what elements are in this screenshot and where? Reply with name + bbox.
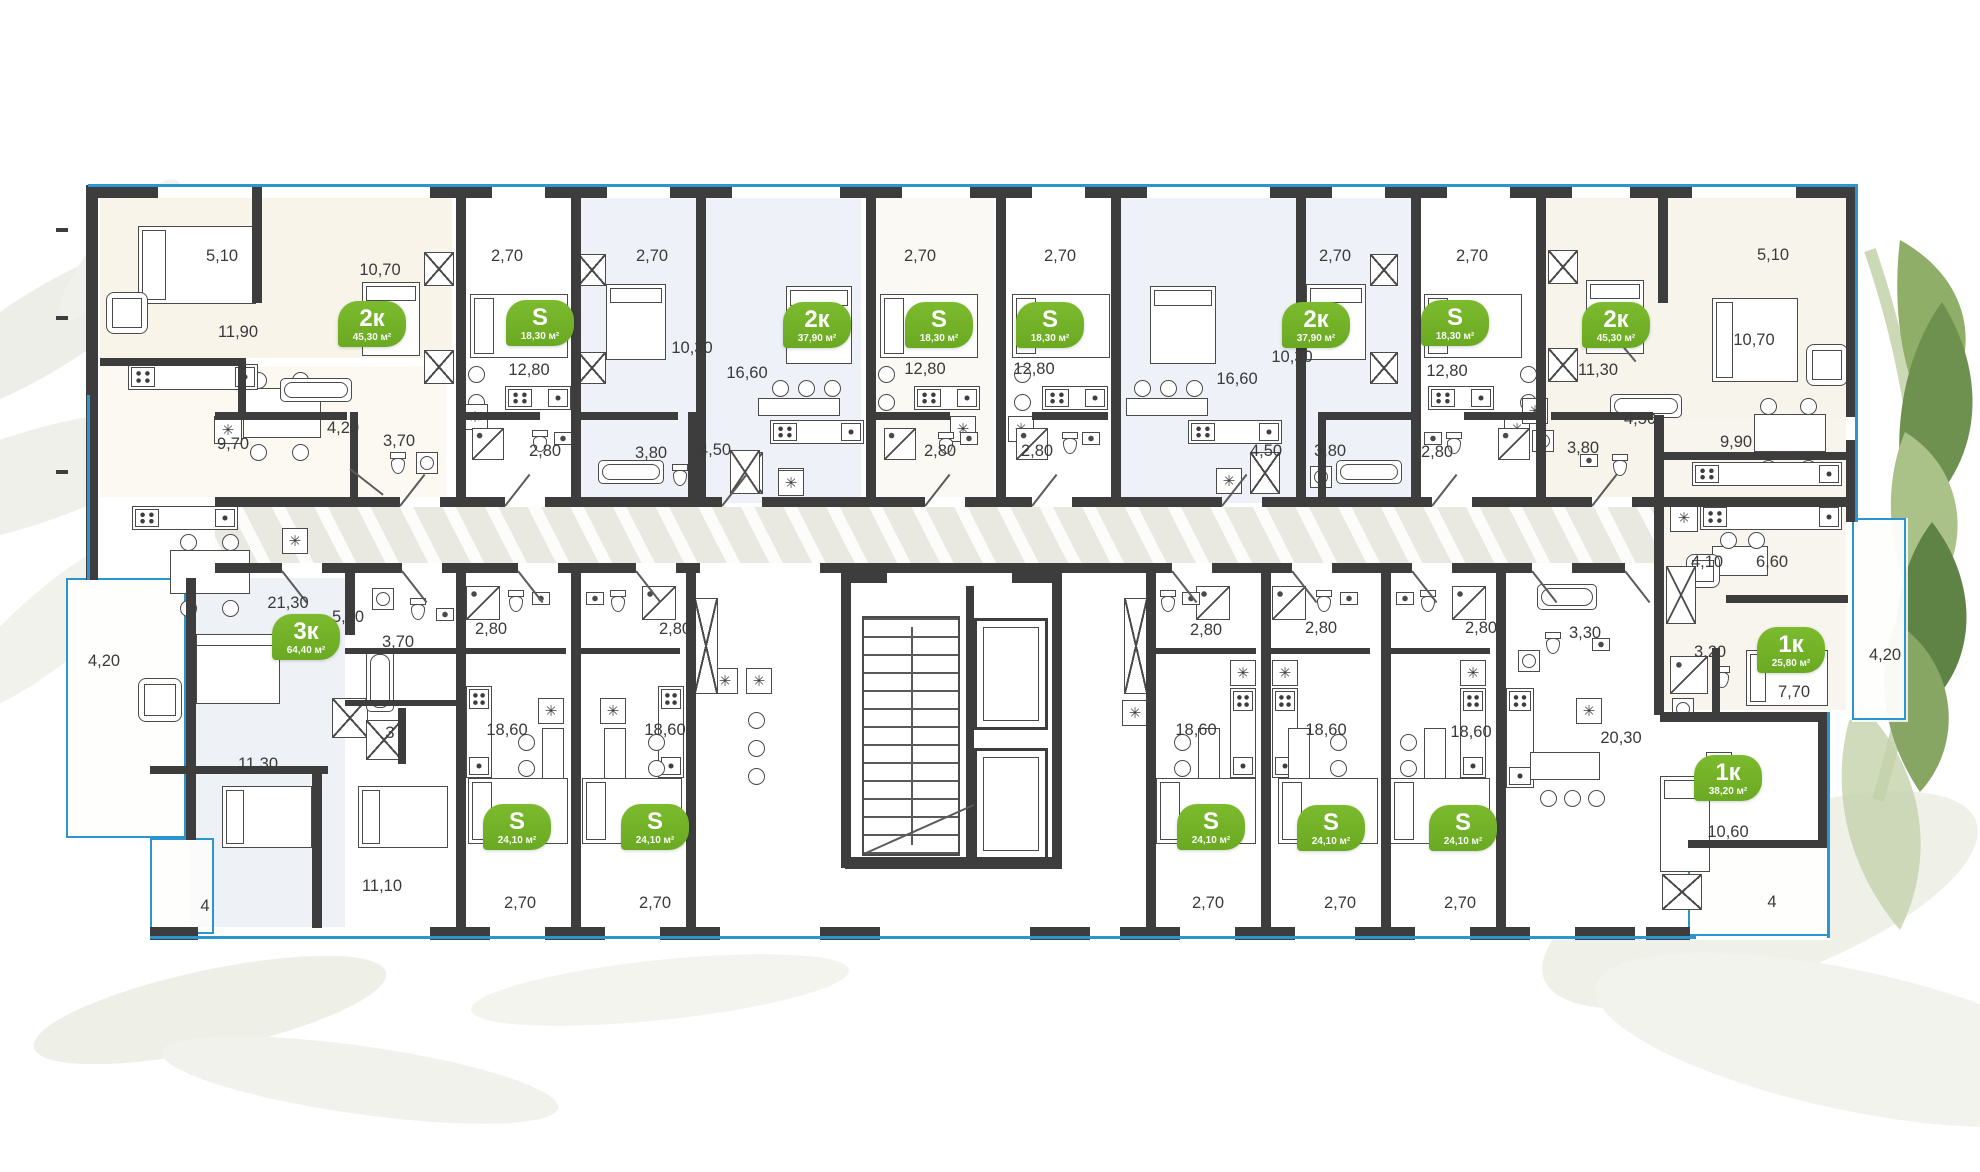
wall: [1262, 497, 1432, 507]
fridge-icon: ✳: [282, 528, 308, 554]
sink-icon: [436, 608, 454, 621]
stove-icon: [917, 389, 941, 407]
toilet-icon: [672, 464, 688, 486]
stool-icon: [1748, 532, 1765, 549]
table-icon: [1424, 728, 1446, 784]
pillow-icon: [1154, 290, 1212, 306]
wall: [996, 198, 1006, 505]
unit-type-label: S: [1429, 811, 1497, 835]
dim-label-u9: 4: [200, 898, 209, 915]
dim-label-u2: 2,70: [491, 248, 523, 265]
wall: [1572, 563, 1625, 573]
sink-icon: [1340, 592, 1358, 605]
exterior-window-line: [1855, 184, 1858, 442]
wardrobe-icon: [1370, 254, 1398, 286]
unit-area-label: 18,30 м²: [1016, 334, 1084, 344]
table-icon: [1530, 752, 1600, 780]
elevator-shaft-1: [974, 618, 1048, 730]
kitchen-counter-icon: [1428, 386, 1494, 410]
wardrobe-icon: [1370, 352, 1398, 384]
toilet-bowl: [1063, 438, 1077, 454]
dim-label-s4: 2,70: [1324, 895, 1356, 912]
dim-label-u7: 2,70: [1456, 248, 1488, 265]
dim-label-s5: 2,70: [1444, 895, 1476, 912]
dim-label-u17: 3,20: [1694, 644, 1726, 661]
unit-type-label: 1к: [1757, 633, 1825, 657]
fridge-icon: ✳: [538, 698, 564, 724]
wall: [56, 316, 68, 320]
stool-icon: [748, 768, 765, 785]
dim-label-s2: 2,80: [659, 621, 691, 638]
wall: [1411, 198, 1421, 505]
pillow-icon: [474, 298, 494, 354]
shower-icon: [1272, 586, 1306, 620]
toilet-icon: [1612, 454, 1628, 476]
wall: [1452, 563, 1532, 573]
dim-label-u3: 10,30: [671, 340, 712, 357]
bed-icon: [1150, 286, 1216, 364]
wall: [1536, 198, 1546, 505]
wardrobe-icon: [1662, 874, 1702, 910]
stool-icon: [250, 444, 267, 461]
kitchen-counter-icon: [505, 386, 571, 410]
armchair-icon: [106, 292, 148, 334]
wall: [345, 700, 465, 706]
dim-label-u9: 4,20: [88, 653, 120, 670]
dim-label-u6: 16,60: [1216, 371, 1257, 388]
dim-label-u1: 9,70: [217, 436, 249, 453]
wall: [1072, 497, 1222, 507]
dim-label-u16: 3,30: [1569, 625, 1601, 642]
unit-badge-u2[interactable]: S18,30 м²: [506, 300, 574, 346]
shower-icon: [1452, 586, 1486, 620]
kitchen-sink-icon: [1509, 767, 1531, 785]
unit-type-label: 2к: [338, 307, 406, 331]
dim-label-u4: 2,80: [924, 443, 956, 460]
toilet-bowl: [1161, 596, 1175, 612]
unit-badge-s3[interactable]: S24,10 м²: [1177, 804, 1245, 850]
washer-drum: [420, 456, 434, 470]
stove-icon: [661, 689, 681, 709]
toilet-icon: [610, 590, 626, 612]
dim-label-u8: 4,50: [1624, 411, 1656, 428]
pillow-icon: [226, 790, 244, 844]
bathtub-icon: [598, 460, 664, 484]
wardrobe-icon: [1548, 348, 1578, 382]
floorplan-stage: ✳✳✳✳✳✳✳✳✳✳✳✳✳✳✳✳✳✳✳✳5,1011,9010,709,704,…: [0, 0, 1980, 1172]
stove-icon: [1191, 423, 1215, 441]
bed-icon: [606, 284, 666, 360]
wardrobe-icon: [578, 254, 606, 286]
dim-label-s5: 18,60: [1450, 724, 1491, 741]
fridge-icon: ✳: [1576, 698, 1602, 724]
dim-label-u16: 10,60: [1707, 824, 1748, 841]
wall: [1472, 497, 1592, 507]
pillow-icon: [366, 286, 416, 301]
stool-icon: [222, 600, 239, 617]
wall: [1270, 648, 1370, 654]
fridge-icon: ✳: [746, 668, 772, 694]
stove-icon: [773, 423, 797, 441]
kitchen-counter-icon: [132, 506, 238, 530]
dim-label-u5: 12,80: [1013, 361, 1054, 378]
unit-area-label: 24,10 м²: [483, 836, 551, 846]
wall: [398, 708, 406, 764]
exterior-window-line: [87, 395, 90, 580]
unit-type-label: 1к: [1694, 761, 1762, 785]
kitchen-counter-icon: [1188, 420, 1282, 444]
wall: [876, 412, 950, 420]
stool-icon: [1540, 790, 1557, 807]
stool-icon: [222, 534, 239, 551]
shower-icon: [466, 586, 500, 620]
pillow-icon: [362, 790, 380, 844]
unit-badge-u16[interactable]: 1к38,20 м²: [1694, 755, 1762, 801]
table-icon: [758, 398, 840, 416]
shower-icon: [1196, 586, 1230, 620]
unit-badge-s2[interactable]: S24,10 м²: [621, 804, 689, 850]
kitchen-sink-icon: [548, 389, 568, 407]
wall: [186, 578, 196, 840]
dim-label-u9: 3: [385, 725, 394, 742]
stool-icon: [1564, 790, 1581, 807]
stove-icon: [508, 389, 532, 407]
unit-area-label: 45,30 м²: [1582, 334, 1650, 344]
bed-icon: [222, 786, 312, 848]
unit-badge-u3[interactable]: 2к37,90 м²: [783, 302, 851, 348]
dim-label-u17: 7,70: [1778, 684, 1810, 701]
stool-icon: [1134, 380, 1151, 397]
dim-label-u9: 11,30: [238, 756, 278, 773]
pillow-icon: [884, 298, 904, 354]
wall: [841, 573, 851, 868]
wall: [440, 497, 505, 507]
armchair-inner: [1812, 350, 1842, 380]
stool-icon: [518, 760, 535, 777]
dim-label-u8: 11,30: [1578, 362, 1618, 379]
balcony-outline: [1852, 518, 1906, 720]
dim-label-u8: 3,80: [1567, 440, 1599, 457]
unit-type-label: S: [506, 306, 574, 330]
sofa-icon: [196, 634, 280, 704]
wall: [1146, 573, 1156, 928]
wardrobe-icon: [1666, 566, 1696, 624]
exterior-window-line: [88, 184, 1858, 187]
stove-icon: [1695, 465, 1719, 483]
wall: [1012, 573, 1062, 583]
unit-area-label: 24,10 м²: [621, 836, 689, 846]
wall: [845, 857, 1062, 869]
dim-label-u6: 3,80: [1314, 443, 1346, 460]
wall: [1654, 415, 1664, 715]
kitchen-sink-icon: [841, 423, 861, 441]
wall: [1156, 648, 1256, 654]
kitchen-counter-icon: [770, 420, 864, 444]
toilet-bowl: [611, 596, 625, 612]
stool-icon: [772, 380, 789, 397]
unit-badge-u6[interactable]: 2к37,90 м²: [1282, 302, 1350, 348]
table-icon: [1126, 398, 1208, 416]
dim-label-s3: 2,80: [1190, 622, 1222, 639]
armchair-icon: [138, 678, 182, 722]
unit-type-label: S: [1016, 308, 1084, 332]
stool-icon: [468, 366, 485, 383]
unit-badge-u9[interactable]: 3к64,40 м²: [272, 614, 340, 660]
table-icon: [542, 728, 564, 784]
toilet-icon: [1160, 590, 1176, 612]
unit-badge-u17[interactable]: 1к25,80 м²: [1757, 627, 1825, 673]
wall: [456, 198, 466, 505]
pillow-icon: [586, 782, 606, 840]
sink-icon: [1396, 592, 1414, 605]
toilet-icon: [1316, 590, 1332, 612]
unit-badge-u4[interactable]: S18,30 м²: [905, 302, 973, 348]
stool-icon: [1520, 366, 1537, 383]
dim-label-u17: 4,10: [1691, 554, 1723, 571]
kitchen-sink-icon: [957, 389, 977, 407]
unit-badge-s5[interactable]: S24,10 м²: [1429, 805, 1497, 851]
kitchen-sink-icon: [1819, 507, 1839, 527]
dim-label-u17: 6,60: [1756, 554, 1788, 571]
stool-icon: [824, 380, 841, 397]
unit-badge-u5[interactable]: S18,30 м²: [1016, 302, 1084, 348]
fridge-icon: ✳: [1216, 468, 1242, 494]
shower-icon: [1670, 656, 1708, 694]
fridge-icon: ✳: [1670, 504, 1698, 532]
unit-badge-u7[interactable]: S18,30 м²: [1421, 300, 1489, 346]
stool-icon: [1588, 790, 1605, 807]
kitchen-counter-icon: [1700, 504, 1842, 530]
stool-icon: [180, 534, 197, 551]
dim-label-u1: 5,10: [206, 248, 238, 265]
washing-machine-icon: [1518, 650, 1540, 672]
unit-area-label: 18,30 м²: [905, 334, 973, 344]
unit-area-label: 18,30 м²: [1421, 332, 1489, 342]
unit-area-label: 37,90 м²: [783, 334, 851, 344]
kitchen-counter-icon: [1230, 688, 1256, 778]
wall: [1660, 712, 1830, 722]
wardrobe-icon: [694, 598, 718, 694]
wall: [252, 185, 262, 303]
dim-label-u1: 3,70: [383, 433, 415, 450]
stool-icon: [292, 444, 309, 461]
unit-area-label: 25,80 м²: [1757, 659, 1825, 669]
bed-icon: [138, 226, 256, 304]
washing-machine-icon: [372, 588, 394, 610]
wall: [845, 573, 887, 583]
stove-icon: [469, 689, 489, 709]
wall: [1660, 497, 1850, 507]
unit-area-label: 64,40 м²: [272, 646, 340, 656]
dim-label-u1: 11,90: [218, 324, 258, 341]
pillow-icon: [1310, 288, 1362, 303]
wall: [100, 358, 240, 366]
armchair-inner: [112, 298, 142, 328]
wardrobe-icon: [1548, 250, 1578, 284]
wall: [866, 198, 876, 505]
dim-label-u8: 10,70: [1733, 332, 1774, 349]
unit-badge-s1[interactable]: S24,10 м²: [483, 804, 551, 850]
fridge-icon: ✳: [1230, 660, 1256, 686]
dim-label-u1: 10,70: [359, 262, 400, 279]
pillow-icon: [1590, 284, 1640, 299]
kitchen-sink-icon: [1085, 389, 1105, 407]
wall: [1464, 412, 1540, 420]
stool-icon: [748, 712, 765, 729]
unit-type-label: 2к: [783, 308, 851, 332]
kitchen-sink-icon: [215, 509, 235, 527]
wall: [1381, 573, 1391, 928]
dim-label-u7: 2,80: [1421, 444, 1453, 461]
wall: [1390, 648, 1490, 654]
unit-type-label: S: [483, 810, 551, 834]
unit-area-label: 38,20 м²: [1694, 787, 1762, 797]
dim-label-u1: 4,20: [327, 420, 359, 437]
shower-icon: [472, 428, 504, 460]
corridor: [215, 507, 1660, 563]
dim-label-u4: 2,70: [904, 248, 936, 265]
dim-label-u3: 16,60: [726, 365, 767, 382]
kitchen-sink-icon: [1259, 423, 1279, 441]
wall: [966, 586, 974, 858]
stairwell: [862, 616, 960, 856]
unit-badge-u8[interactable]: 2к45,30 м²: [1582, 302, 1650, 348]
pillow-icon: [1394, 782, 1414, 840]
fridge-icon: ✳: [778, 470, 804, 496]
stool-icon: [1174, 760, 1191, 777]
elevator-shaft-2: [974, 748, 1048, 860]
wall: [558, 563, 636, 573]
stove-icon: [1431, 389, 1455, 407]
toilet-icon: [1545, 632, 1561, 654]
dim-label-u4: 12,80: [904, 361, 945, 378]
kitchen-counter-icon: [1042, 386, 1108, 410]
bathtub-inner: [602, 464, 660, 480]
wall: [56, 228, 68, 232]
dim-label-u3: 4,50: [699, 442, 731, 459]
dim-label-s3: 2,70: [1192, 895, 1224, 912]
wall: [56, 470, 68, 474]
unit-type-label: S: [621, 810, 689, 834]
unit-type-label: S: [905, 308, 973, 332]
floorplan-canvas: ✳✳✳✳✳✳✳✳✳✳✳✳✳✳✳✳✳✳✳✳5,1011,9010,709,704,…: [0, 0, 1980, 1172]
unit-badge-s4[interactable]: S24,10 м²: [1297, 805, 1365, 851]
exterior-window-line: [1827, 712, 1830, 938]
dim-label-s1: 2,70: [504, 895, 536, 912]
stool-icon: [1160, 380, 1177, 397]
wall: [1658, 185, 1668, 303]
wall: [965, 497, 1032, 507]
wall: [1052, 573, 1062, 868]
dim-label-u2: 2,80: [529, 443, 561, 460]
dim-label-s3: 18,60: [1175, 722, 1216, 739]
kitchen-sink-icon: [1471, 389, 1491, 407]
dim-label-s4: 18,60: [1305, 722, 1346, 739]
unit-type-label: S: [1421, 306, 1489, 330]
stove-icon: [1463, 691, 1483, 711]
toilet-bowl: [1317, 596, 1331, 612]
washer-drum: [1522, 654, 1536, 668]
table-icon: [604, 728, 626, 784]
stool-icon: [1014, 394, 1031, 411]
unit-area-label: 24,10 м²: [1297, 837, 1365, 847]
unit-area-label: 24,10 м²: [1429, 837, 1497, 847]
wall: [1688, 840, 1830, 848]
wall: [1212, 563, 1292, 573]
stool-icon: [648, 760, 665, 777]
unit-badge-u1[interactable]: 2к45,30 м²: [338, 301, 406, 347]
toilet-icon: [1062, 432, 1078, 454]
stove-icon: [1703, 507, 1727, 527]
kitchen-sink-icon: [469, 757, 489, 775]
wall: [1332, 563, 1412, 573]
washing-machine-icon: [416, 452, 438, 474]
bathtub-inner: [284, 382, 348, 398]
wall: [545, 497, 722, 507]
wardrobe-icon: [366, 720, 402, 760]
bathtub-icon: [1336, 460, 1402, 484]
dim-label-u3: 2,70: [636, 248, 668, 265]
wall: [442, 563, 518, 573]
dim-label-u5: 2,80: [1021, 443, 1053, 460]
stool-icon: [878, 366, 895, 383]
stool-icon: [1330, 760, 1347, 777]
washer-drum: [376, 592, 390, 606]
dim-label-u17: 4,20: [1869, 647, 1901, 664]
stool-icon: [1400, 734, 1417, 751]
wall: [1032, 412, 1108, 420]
wall: [688, 412, 696, 504]
dim-label-u2: 12,80: [508, 362, 549, 379]
dim-label-s1: 18,60: [486, 722, 527, 739]
stove-icon: [1045, 389, 1069, 407]
wall: [581, 412, 678, 420]
dim-label-u9: 21,30: [267, 595, 308, 612]
kitchen-counter-icon: [1692, 462, 1842, 486]
stool-icon: [878, 394, 895, 411]
dim-label-s5: 2,80: [1465, 620, 1497, 637]
dim-label-u16: 20,30: [1600, 730, 1641, 747]
dim-label-u8: 9,90: [1720, 434, 1752, 451]
armchair-icon: [1806, 344, 1848, 386]
wall: [466, 412, 540, 420]
stool-icon: [748, 740, 765, 757]
wall: [466, 648, 566, 654]
bathtub-inner: [1340, 464, 1398, 480]
stove-icon: [131, 367, 155, 387]
wall: [1326, 412, 1416, 420]
pillow-icon: [142, 230, 166, 300]
fridge-icon: ✳: [1122, 700, 1148, 726]
unit-area-label: 24,10 м²: [1177, 836, 1245, 846]
toilet-bowl: [391, 458, 405, 474]
dim-label-u7: 12,80: [1426, 363, 1467, 380]
dim-label-s4: 2,80: [1305, 620, 1337, 637]
wall: [1660, 452, 1850, 460]
dim-label-u6: 10,30: [1271, 349, 1312, 366]
shower-icon: [884, 428, 916, 460]
stool-icon: [1720, 532, 1737, 549]
armchair-inner: [144, 684, 176, 716]
exterior-window-line: [150, 936, 1696, 939]
wall: [580, 648, 680, 654]
dim-label-u16: 4: [1767, 894, 1776, 911]
toilet-bowl: [673, 470, 687, 486]
stool-icon: [1760, 398, 1777, 415]
wardrobe-icon: [424, 252, 454, 286]
dim-label-u3: 3,80: [635, 445, 667, 462]
dim-label-u8: 5,10: [1757, 247, 1789, 264]
